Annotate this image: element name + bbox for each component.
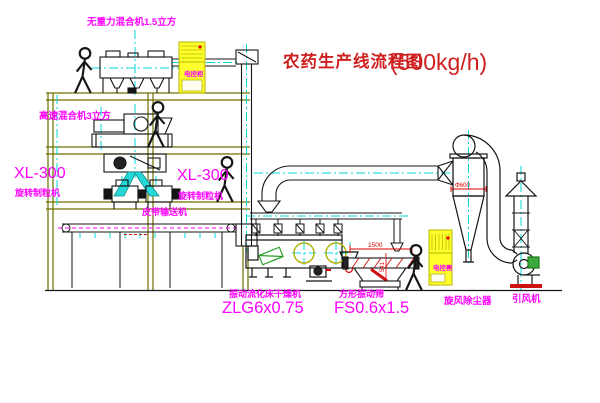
cyclone-separator: [450, 135, 500, 262]
label-screen-name: 方形振动筛: [339, 288, 384, 299]
label-granulator-right-model: XL-300: [177, 167, 229, 184]
indicator-dot: [446, 236, 449, 239]
induced-draft-fan: [510, 253, 542, 288]
label-gravity-free-mixer: 无重力混合机1.5立方: [86, 16, 177, 28]
y-chute: [114, 172, 159, 196]
label-fan: 引风机: [512, 293, 541, 305]
cabinet-top-text: 电控柜: [184, 69, 204, 78]
dim-cyclone-diameter: Φ600: [455, 183, 470, 189]
gravity-free-mixer: [100, 51, 236, 93]
person-figure: [406, 245, 423, 290]
fan-base: [510, 284, 542, 288]
indicator-dot: [198, 45, 201, 48]
control-cabinet-top: 电控柜: [179, 42, 205, 93]
dryer-inner-plate: [259, 247, 283, 265]
fan-inlet-duct: [487, 171, 517, 263]
label-screen-model: FS0.6x1.5: [334, 299, 409, 317]
person-figure: [75, 48, 92, 93]
label-granulator-left-model: XL-300: [14, 165, 66, 182]
control-cabinet-right: 电控柜: [429, 230, 453, 285]
label-granulator-left-name: 旋转制粒机: [14, 187, 60, 198]
dim-screen-height: 541: [380, 261, 386, 272]
spring-supports: [252, 219, 342, 236]
fluid-bed-dryer: [246, 235, 358, 281]
pesticide-line-diagram: 电控柜: [0, 0, 600, 403]
diagram-canvas: 电控柜: [0, 0, 600, 403]
label-granulator-right-name: 旋转制粒机: [177, 190, 223, 201]
diagram-title: 农药生产线流程图 (500kg/h): [282, 49, 487, 75]
label-dryer-model: ZLG6x0.75: [222, 299, 304, 317]
cabinet-right-text: 电控柜: [433, 263, 453, 272]
exhaust-duct: [258, 161, 453, 212]
fan-motor: [528, 257, 539, 268]
person-figure: [148, 102, 165, 147]
label-high-speed-mixer: 高速混合机3立方: [39, 110, 111, 122]
dim-screen-length: 1500: [368, 242, 383, 249]
label-cyclone: 旋风除尘器: [443, 295, 492, 307]
title-capacity: (500kg/h): [390, 49, 487, 75]
high-speed-mixer: [92, 114, 172, 172]
label-belt-conveyor: 皮带输送机: [141, 206, 187, 217]
label-dryer-name: 振动流化床干燥机: [229, 288, 301, 299]
